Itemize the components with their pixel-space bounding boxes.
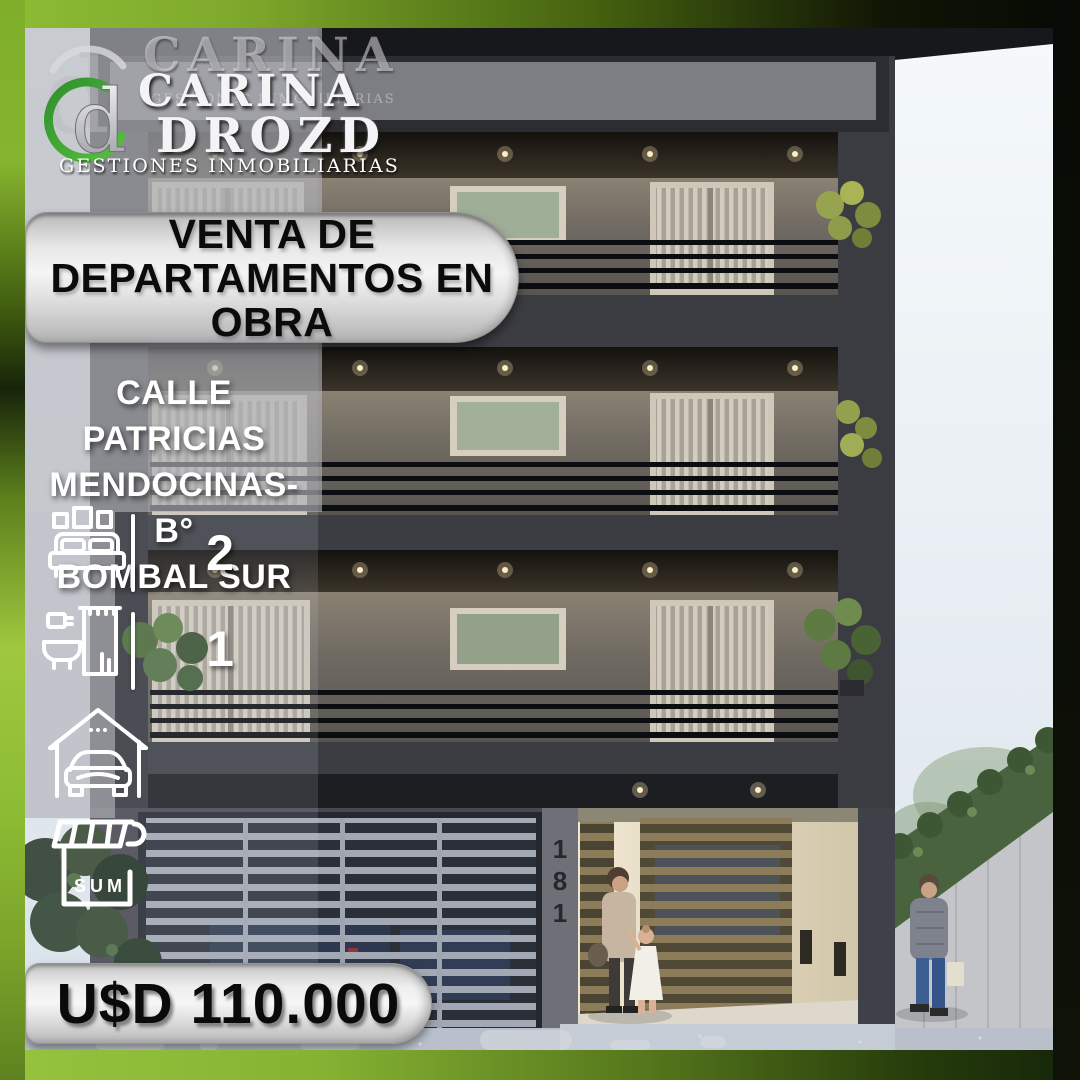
window <box>650 182 774 295</box>
bathroom-icon <box>40 602 132 688</box>
flyer-canvas: 1 8 1 <box>0 0 1080 1080</box>
frame-top <box>0 0 1080 28</box>
banner-line: VENTA DE <box>50 212 493 256</box>
title-banner-text: VENTA DE DEPARTAMENTOS EN OBRA <box>50 212 493 344</box>
banner-line: DEPARTAMENTOS EN <box>50 256 493 300</box>
location-line: CALLE PATRICIAS <box>28 370 320 462</box>
wall-sconce <box>800 930 812 964</box>
price-text: U$D 110.000 <box>57 971 401 1037</box>
frame-right <box>1053 0 1080 1080</box>
street-number-digit: 1 <box>553 898 567 928</box>
sum-icon: SUM <box>46 816 150 916</box>
wall-sconce <box>834 942 846 976</box>
brand-logo: d d CARINA GESTIONES INMOBILIARIAS CARIN… <box>25 28 335 198</box>
window <box>450 608 566 670</box>
frame-left <box>0 0 25 1080</box>
bedroom-count: 2 <box>185 524 255 582</box>
sum-label: SUM <box>74 876 126 896</box>
title-banner: VENTA DE DEPARTAMENTOS EN OBRA <box>25 212 519 343</box>
street-number-digit: 1 <box>553 834 567 864</box>
garage-icon <box>40 702 156 804</box>
brand-tagline: GESTIONES INMOBILIARIAS <box>59 155 400 177</box>
feature-divider <box>131 514 135 592</box>
bedroom-icon <box>44 506 136 592</box>
banner-line: OBRA <box>50 300 493 344</box>
frame-bottom <box>0 1050 1080 1080</box>
price-banner: U$D 110.000 <box>25 963 432 1044</box>
street-number: 1 8 1 <box>553 834 567 928</box>
street-number-digit: 8 <box>553 866 567 896</box>
window <box>450 396 566 456</box>
window <box>650 393 774 515</box>
bathroom-count: 1 <box>185 620 255 678</box>
feature-divider <box>131 612 135 690</box>
